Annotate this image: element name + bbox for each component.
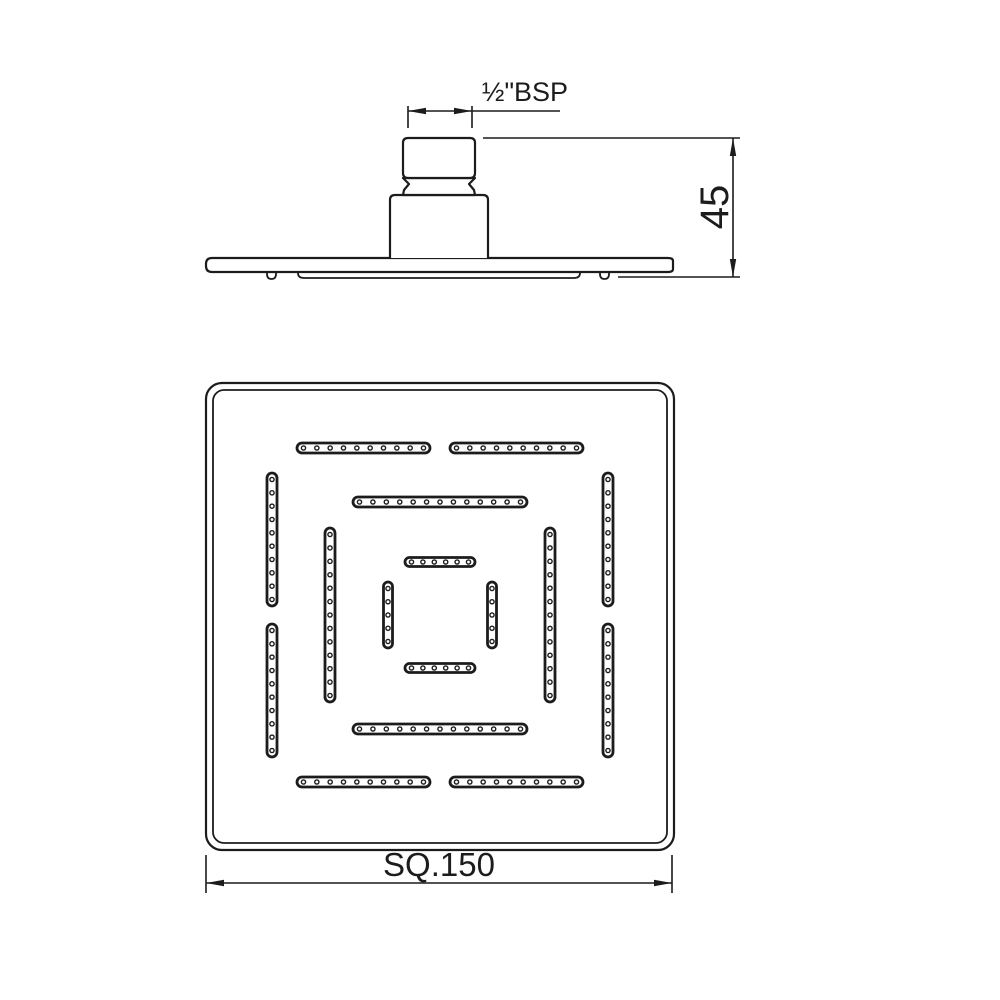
nozzle-hole (481, 780, 485, 784)
nozzle-hole (548, 446, 552, 450)
nozzle-hole (606, 628, 610, 632)
nozzle-hole (386, 586, 390, 590)
nozzle-hole (270, 504, 274, 508)
nozzle-hole (421, 446, 425, 450)
nozzle-hole (465, 727, 469, 731)
nozzle-hole (386, 613, 390, 617)
mounting-base (390, 195, 488, 258)
nozzle-hole (270, 477, 274, 481)
shower-head-technical-drawing: ½"BSP 45 SQ.150 (0, 0, 1000, 1000)
nozzle-hole (357, 727, 361, 731)
nozzle-hole (508, 780, 512, 784)
nozzle-hole (451, 727, 455, 731)
nozzle-hole (411, 727, 415, 731)
nozzle-hole (606, 584, 610, 588)
nozzle-hole (424, 500, 428, 504)
nozzle-hole (328, 640, 332, 644)
nozzle-hole (328, 599, 332, 603)
nozzle-hole (408, 780, 412, 784)
nozzle-hole (494, 780, 498, 784)
nozzle-hole (492, 727, 496, 731)
nozzle-hole (606, 682, 610, 686)
nozzle-hole (574, 446, 578, 450)
nozzle-hole (518, 500, 522, 504)
nozzle-hole (432, 560, 436, 564)
nozzle-hole (606, 597, 610, 601)
nozzle-hole (301, 780, 305, 784)
nozzle-hole (371, 500, 375, 504)
dimension-arrow-right (454, 108, 472, 114)
nozzle-hole (368, 780, 372, 784)
nozzle-hole (341, 780, 345, 784)
nozzle-hole (368, 446, 372, 450)
nozzle-hole (409, 560, 413, 564)
nozzle-hole (328, 680, 332, 684)
side-view (206, 138, 673, 279)
nozzle-hole (548, 680, 552, 684)
nozzle-hole (270, 642, 274, 646)
nozzle-hole (508, 446, 512, 450)
nozzle-hole (548, 532, 552, 536)
nozzle-hole (478, 727, 482, 731)
nozzle-hole (384, 727, 388, 731)
nozzle-hole (432, 666, 436, 670)
nozzle-hole (505, 500, 509, 504)
height-dimension-label: 45 (693, 185, 737, 230)
nozzle-hole (492, 500, 496, 504)
face-size-label: SQ.150 (383, 846, 495, 883)
technical-drawing-page: ½"BSP 45 SQ.150 (0, 0, 1000, 1000)
nozzle-hole (444, 560, 448, 564)
nozzle-hole (606, 708, 610, 712)
nozzle-hole (328, 573, 332, 577)
nozzle-hole (534, 780, 538, 784)
nozzle-hole (468, 446, 472, 450)
nozzle-hole (355, 780, 359, 784)
dimension-arrow-right (654, 880, 672, 886)
nozzle-hole (548, 667, 552, 671)
nozzle-hole (455, 666, 459, 670)
thread-connector (403, 138, 475, 178)
nozzle-hole (270, 517, 274, 521)
nozzle-hole (606, 531, 610, 535)
nozzle-hole (270, 735, 274, 739)
nozzle-hole (411, 500, 415, 504)
nozzle-hole (548, 559, 552, 563)
nozzle-hole (315, 446, 319, 450)
nozzle-hole (371, 727, 375, 731)
nozzle-hole (395, 780, 399, 784)
plan-view (206, 383, 674, 850)
nozzle-hole (328, 626, 332, 630)
nozzle-hole (328, 586, 332, 590)
nozzle-hole (521, 446, 525, 450)
nozzle-hole (481, 446, 485, 450)
nozzle-hole (421, 780, 425, 784)
nozzle-hole (606, 642, 610, 646)
nozzle-hole (606, 722, 610, 726)
nozzle-hole (548, 599, 552, 603)
nozzle-hole (315, 780, 319, 784)
nozzle-hole (561, 446, 565, 450)
nozzle-hole (451, 500, 455, 504)
nozzle-hole (386, 639, 390, 643)
nozzle-hole (548, 586, 552, 590)
nozzle-hole (606, 695, 610, 699)
nozzle-hole (606, 571, 610, 575)
nozzle-hole (270, 531, 274, 535)
nozzle-hole (386, 626, 390, 630)
nozzle-hole (490, 600, 494, 604)
nozzle-hole (328, 693, 332, 697)
nozzle-hole (384, 500, 388, 504)
nozzle-hole (574, 780, 578, 784)
nozzle-hole (548, 613, 552, 617)
nozzle-hole (438, 727, 442, 731)
nozzle-hole (465, 500, 469, 504)
nozzle-hole (490, 626, 494, 630)
nozzle-hole (270, 628, 274, 632)
nozzle-hole (424, 727, 428, 731)
nozzle-hole (606, 504, 610, 508)
nozzle-hole (328, 559, 332, 563)
nozzle-hole (521, 780, 525, 784)
nozzle-hole (438, 500, 442, 504)
nozzle-hole (421, 666, 425, 670)
nozzle-hole (518, 727, 522, 731)
nozzle-hole (270, 584, 274, 588)
nozzle-hole (398, 500, 402, 504)
nozzle-hole (490, 586, 494, 590)
nozzle-hole (421, 560, 425, 564)
thread-size-label: ½"BSP (482, 77, 568, 107)
nozzle-hole (270, 655, 274, 659)
nozzle-hole (357, 500, 361, 504)
nozzle-hole (270, 571, 274, 575)
nozzle-hole (386, 600, 390, 604)
nozzle-hole (270, 557, 274, 561)
nozzle-hole (606, 491, 610, 495)
nozzle-hole (328, 653, 332, 657)
thread-dimension-lines (408, 106, 560, 128)
nozzle-hole (548, 573, 552, 577)
nozzle-hole (270, 722, 274, 726)
nozzle-hole (548, 640, 552, 644)
nozzle-slot-inner-h (405, 664, 475, 673)
nozzle-hole (328, 546, 332, 550)
nozzle-hole (381, 446, 385, 450)
nozzle-hole (270, 748, 274, 752)
height-dimension: 45 (483, 138, 740, 277)
nozzle-hole (341, 446, 345, 450)
nozzle-hole (606, 655, 610, 659)
nozzle-hole (270, 695, 274, 699)
nozzle-hole (395, 446, 399, 450)
nozzle-hole (478, 500, 482, 504)
nozzle-hole (270, 491, 274, 495)
nozzle-slot-inner-h (405, 558, 475, 567)
nozzle-hole (270, 544, 274, 548)
nozzle-hole (606, 748, 610, 752)
nozzle-hole (466, 560, 470, 564)
nozzle-hole (455, 560, 459, 564)
dimension-arrow-left (206, 880, 224, 886)
nozzle-hole (270, 597, 274, 601)
nozzle-hole (270, 668, 274, 672)
dimension-arrow-left (408, 108, 426, 114)
nozzle-hole (381, 780, 385, 784)
shower-plate-side (206, 258, 673, 272)
nozzle-hole (606, 557, 610, 561)
nozzle-hole (328, 780, 332, 784)
nozzle-hole (328, 667, 332, 671)
nozzle-hole (468, 780, 472, 784)
nozzle-hole (328, 446, 332, 450)
nozzle-hole (494, 446, 498, 450)
nozzle-hole (328, 613, 332, 617)
nozzle-hole (355, 446, 359, 450)
nozzle-hole (548, 653, 552, 657)
nozzle-hole (444, 666, 448, 670)
nozzle-hole (270, 708, 274, 712)
nozzle-hole (301, 446, 305, 450)
nozzle-hole (328, 532, 332, 536)
nozzle-hole (606, 477, 610, 481)
nozzle-hole (408, 446, 412, 450)
nozzle-hole (454, 446, 458, 450)
nozzle-hole (505, 727, 509, 731)
nozzle-hole (466, 666, 470, 670)
nozzle-hole (534, 446, 538, 450)
nozzle-hole (606, 668, 610, 672)
nozzle-hole (548, 546, 552, 550)
connector-neck (403, 178, 475, 195)
nozzle-hole (548, 626, 552, 630)
nozzle-hole (561, 780, 565, 784)
nozzle-hole (490, 639, 494, 643)
face-dimension: SQ.150 (206, 846, 672, 893)
nozzle-hole (606, 517, 610, 521)
nozzle-hole (606, 735, 610, 739)
nozzle-hole (548, 693, 552, 697)
nozzle-hole (548, 780, 552, 784)
thread-dimension: ½"BSP (408, 77, 568, 128)
nozzle-hole (398, 727, 402, 731)
nozzle-hole (409, 666, 413, 670)
face-plate-outer-edge (206, 383, 674, 850)
dimension-arrow-up (730, 138, 736, 156)
nozzle-hole (490, 613, 494, 617)
nozzle-hole (270, 682, 274, 686)
nozzle-hole (606, 544, 610, 548)
nozzle-hole (454, 780, 458, 784)
dimension-arrow-down (730, 259, 736, 277)
